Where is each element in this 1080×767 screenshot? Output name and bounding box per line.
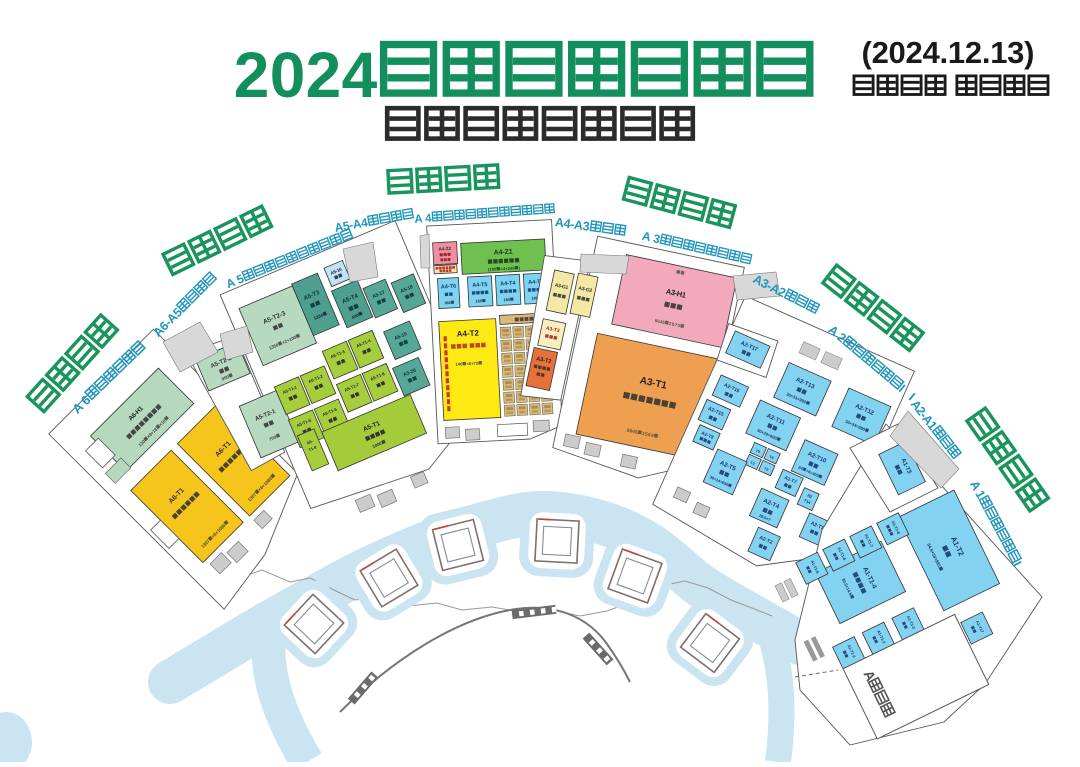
svg-text:A4-T2: A4-T2 <box>457 329 480 339</box>
svg-text:2024: 2024 <box>234 39 378 111</box>
svg-text:A4-Z1: A4-Z1 <box>494 249 513 257</box>
svg-text:180: 180 <box>503 297 511 302</box>
svg-text:180: 180 <box>444 300 452 305</box>
svg-text:(180: (180 <box>488 267 497 272</box>
svg-text:A4-T5: A4-T5 <box>472 282 488 289</box>
svg-text:(2024.12.13): (2024.12.13) <box>862 35 1035 70</box>
svg-text:A4-Z2: A4-Z2 <box>438 246 451 252</box>
svg-text:140: 140 <box>455 361 463 366</box>
svg-text:A4-T6: A4-T6 <box>441 284 457 291</box>
svg-text:×6+72: ×6+72 <box>466 361 479 367</box>
svg-text:180: 180 <box>475 298 483 303</box>
svg-text:×4+240: ×4+240 <box>500 266 515 272</box>
svg-text:A4-T4: A4-T4 <box>500 280 517 287</box>
